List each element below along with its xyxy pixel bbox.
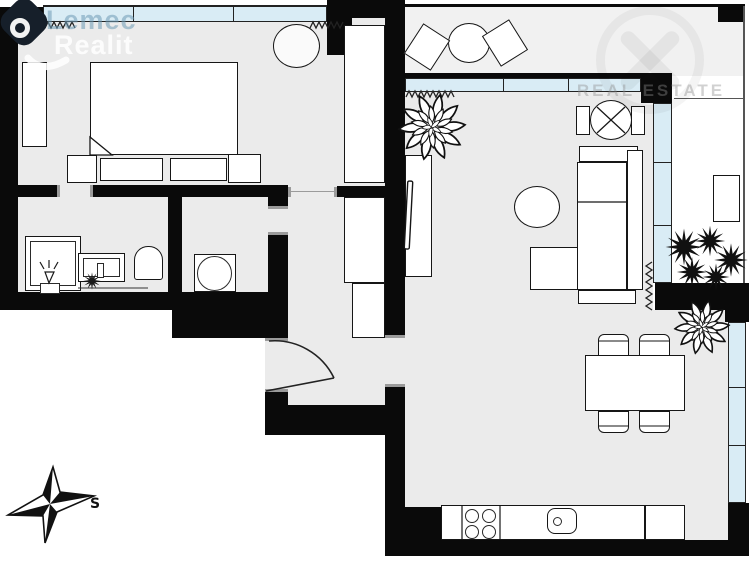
floor-plan: Lemec Realit REAL ESTATE S — [0, 0, 749, 562]
nightstand-right — [228, 154, 261, 183]
sofa-chaise — [530, 247, 578, 290]
wall-segment — [385, 507, 441, 556]
hob-burner — [465, 525, 479, 539]
faucet — [97, 263, 104, 278]
window-divider — [728, 445, 746, 446]
small-table-chair-left — [576, 106, 590, 135]
door-jamb — [288, 187, 291, 197]
door-jamb — [385, 384, 405, 387]
kitchen-fridge — [645, 505, 685, 540]
window-divider — [653, 225, 672, 226]
wall-segment — [655, 283, 749, 310]
dining-chair — [639, 334, 670, 356]
sofa-backrest — [627, 150, 643, 290]
round-rug — [273, 24, 320, 68]
hall-cabinet — [352, 283, 385, 338]
sink-drain — [553, 517, 562, 526]
door-jamb — [334, 187, 337, 197]
window-right-upper — [653, 103, 672, 283]
door-jamb — [265, 338, 288, 341]
sofa-seat — [577, 162, 627, 290]
balcony-table — [448, 23, 490, 63]
door-jamb — [57, 185, 60, 197]
wall-segment — [385, 4, 405, 335]
shower-step — [40, 283, 60, 294]
watermark-text-2: Realit — [54, 30, 134, 61]
compass-icon — [8, 467, 94, 543]
shower-tray — [30, 241, 76, 286]
nightstand-left — [67, 155, 97, 183]
wall-segment — [168, 185, 182, 292]
bed — [90, 62, 238, 155]
dark-plant — [666, 226, 748, 291]
door-jamb — [90, 185, 93, 197]
watermark-estate-text: REAL ESTATE — [556, 81, 746, 101]
ac-unit — [713, 175, 740, 222]
built-in-wardrobe-2 — [344, 197, 385, 283]
wall-segment — [337, 186, 385, 197]
toilet — [134, 246, 163, 280]
door-jamb — [268, 206, 288, 209]
dresser-1 — [100, 158, 163, 181]
hob-burner — [482, 525, 496, 539]
wall-segment — [172, 292, 288, 338]
window-divider — [503, 78, 504, 92]
door-jamb — [385, 335, 405, 338]
door-jamb — [268, 232, 288, 235]
dining-chair — [598, 334, 629, 356]
door-jamb — [265, 389, 288, 392]
compass-south-label: S — [90, 496, 100, 512]
logo-dot — [17, 25, 23, 31]
wall-segment — [718, 4, 745, 22]
window-divider — [653, 162, 672, 163]
wall-segment — [725, 310, 749, 322]
window-divider — [728, 387, 746, 388]
washing-machine-drum — [197, 256, 232, 291]
coffee-table — [514, 186, 560, 228]
hob-burner — [482, 509, 496, 523]
dining-chair — [639, 411, 670, 433]
door-threshold — [289, 191, 335, 192]
wall-segment — [93, 185, 168, 197]
dining-table — [585, 355, 685, 411]
kitchen-sink — [547, 508, 577, 534]
dresser-2 — [170, 158, 227, 181]
built-in-wardrobe-1 — [344, 25, 385, 183]
wall-segment — [268, 235, 288, 292]
dining-chair — [598, 411, 629, 433]
facade-line — [743, 6, 745, 283]
wall-segment — [405, 540, 749, 556]
window-right-lower — [728, 322, 746, 503]
sofa-armrest-bottom — [578, 290, 636, 304]
window-divider — [233, 5, 234, 22]
wall-segment — [265, 405, 405, 435]
tv-sideboard — [405, 155, 432, 277]
hob-burner — [465, 509, 479, 523]
wardrobe-left — [22, 62, 47, 147]
wall-segment — [18, 185, 57, 197]
